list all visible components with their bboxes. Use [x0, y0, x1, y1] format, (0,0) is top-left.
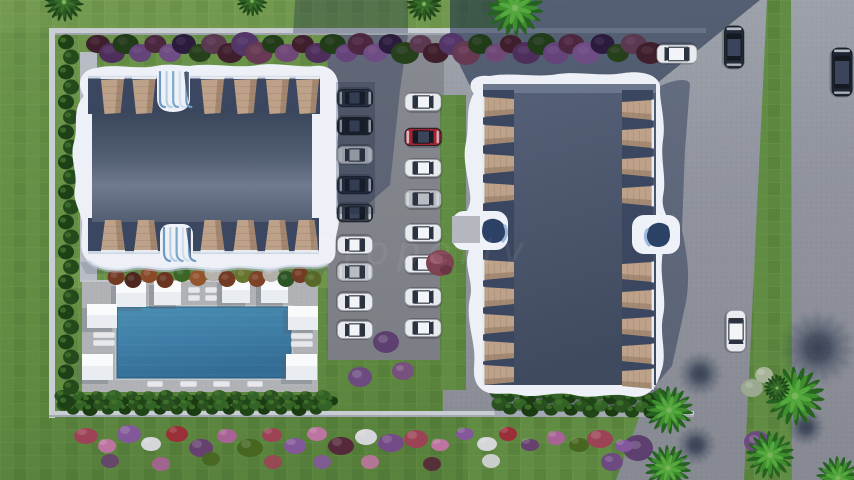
svg-text:Property: Property — [308, 229, 531, 273]
